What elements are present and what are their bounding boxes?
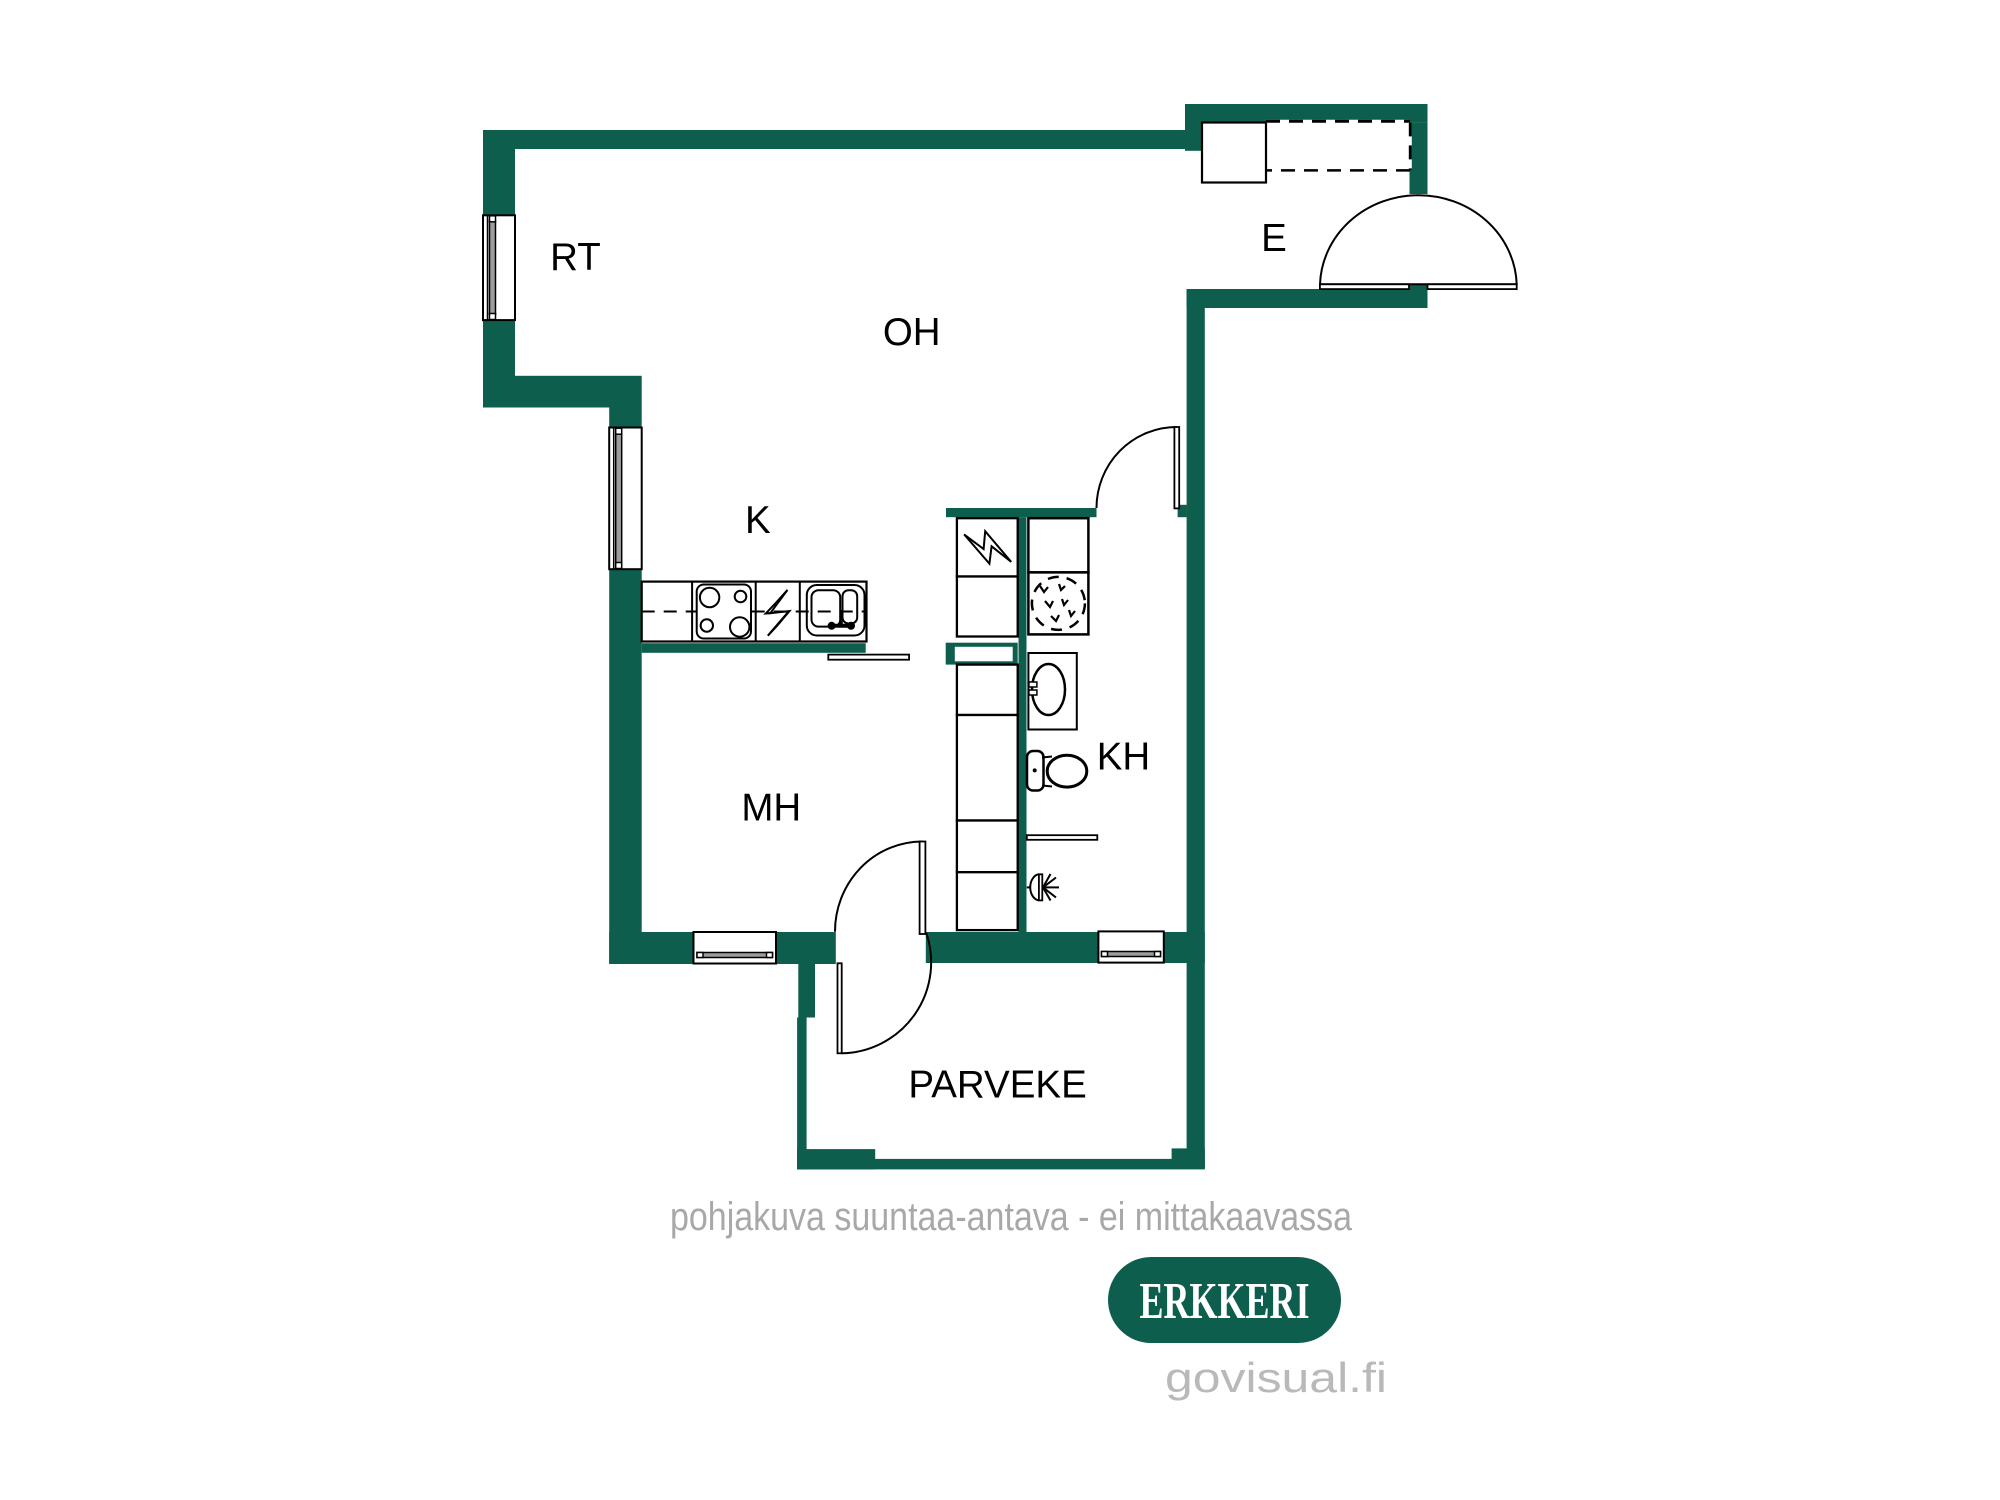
svg-text:govisual.fi: govisual.fi <box>1165 1354 1387 1401</box>
svg-text:PARVEKE: PARVEKE <box>908 1063 1086 1106</box>
svg-text:OH: OH <box>883 311 941 354</box>
svg-text:MH: MH <box>741 786 801 829</box>
svg-text:ERKKERI: ERKKERI <box>1140 1273 1310 1330</box>
svg-text:E: E <box>1261 217 1287 260</box>
svg-text:KH: KH <box>1097 735 1150 778</box>
svg-text:pohjakuva suuntaa-antava - ei: pohjakuva suuntaa-antava - ei mittakaava… <box>670 1195 1353 1239</box>
svg-text:K: K <box>745 499 771 542</box>
svg-text:RT: RT <box>550 236 601 279</box>
